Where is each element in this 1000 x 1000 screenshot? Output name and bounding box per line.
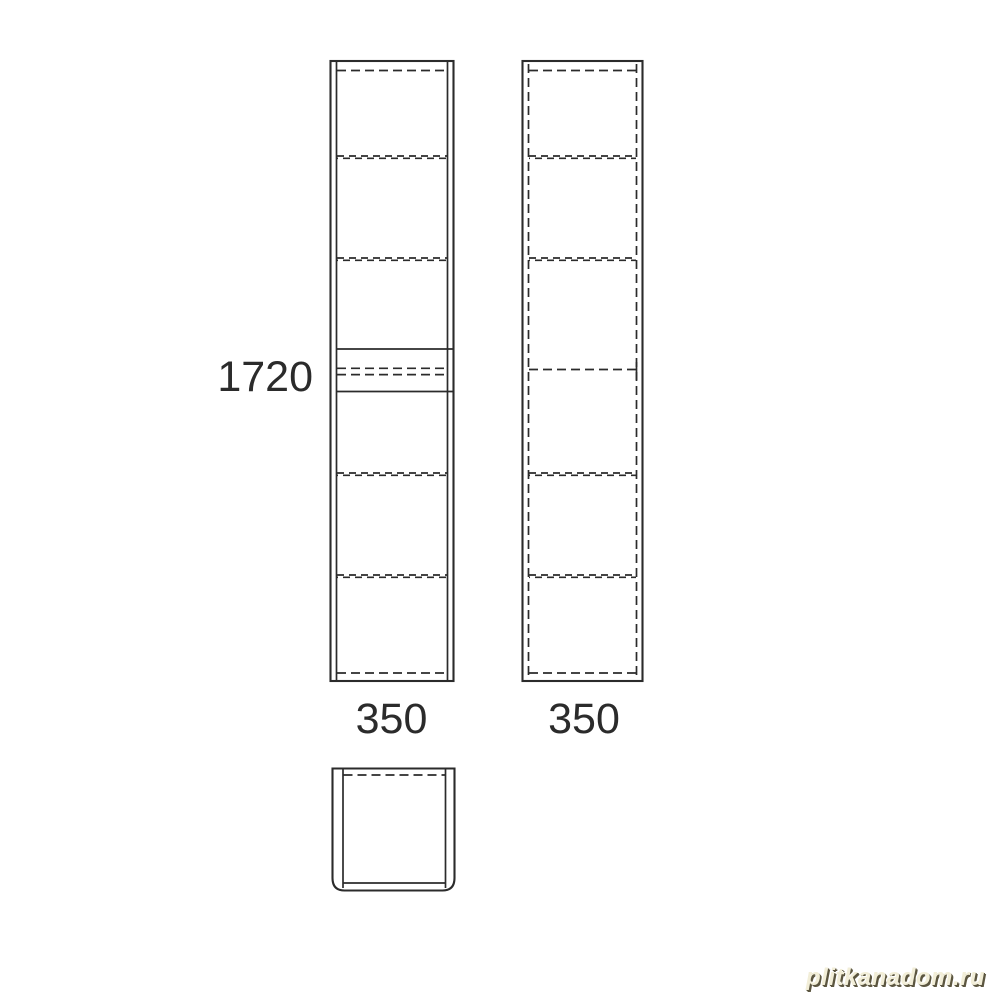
watermark-text: plitkanadom.ru: [806, 964, 985, 992]
cabinet-hidden-lines-view: [523, 61, 643, 681]
shelf-wavy-line: [529, 473, 636, 475]
shelf-wavy-line: [337, 156, 447, 158]
shelf-wavy-line: [337, 575, 447, 577]
door-split-band: [337, 349, 454, 392]
shelf-wavy-line: [529, 575, 636, 577]
shelf-wavy-line: [529, 156, 636, 158]
technical-drawing: 1720 350 350: [0, 0, 1000, 1000]
shelf-wavy-line: [337, 473, 447, 475]
width-dimension-label-left: 350: [356, 695, 428, 743]
height-dimension-label: 1720: [217, 353, 313, 401]
shelf-wavy-line: [337, 258, 447, 260]
width-dimension-label-right: 350: [548, 695, 620, 743]
cabinet-front-view: [331, 61, 454, 681]
shelf-wavy-line: [529, 258, 636, 260]
cabinet-top-view: [333, 769, 455, 891]
cabinet-outline: [331, 61, 454, 681]
cabinet-outline: [523, 61, 643, 681]
drawing-canvas: 1720 350 350 plitkanadom.ru: [0, 0, 1000, 1000]
top-view-outline: [333, 769, 455, 891]
